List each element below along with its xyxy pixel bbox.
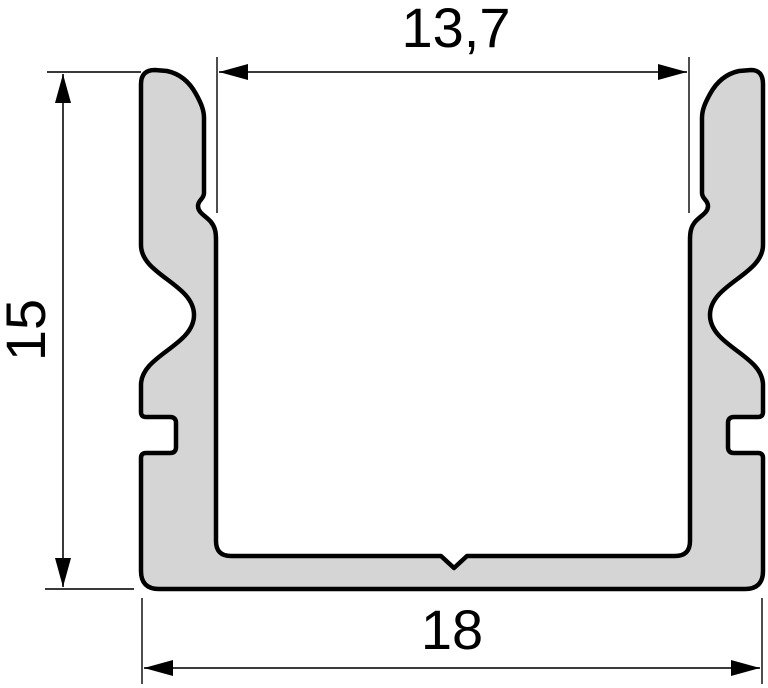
dimension-label-inner-width: 13,7 — [402, 0, 511, 59]
dimension-inner-width: 13,7 — [217, 0, 689, 213]
profile-outline — [141, 70, 763, 589]
arrowhead-top — [55, 74, 71, 103]
arrowhead-bottom — [55, 558, 71, 587]
dimension-height: 15 — [0, 72, 141, 589]
arrowhead-right — [658, 64, 687, 80]
arrowhead-left — [219, 64, 248, 80]
arrowhead-left — [144, 660, 173, 676]
dimension-label-height: 15 — [0, 299, 57, 361]
arrowhead-right — [731, 660, 760, 676]
dimension-outer-width: 18 — [142, 598, 762, 684]
dimension-label-outer-width: 18 — [421, 598, 483, 661]
drawing-canvas: 13,7 15 18 — [0, 0, 768, 688]
technical-drawing: 13,7 15 18 — [0, 0, 768, 688]
